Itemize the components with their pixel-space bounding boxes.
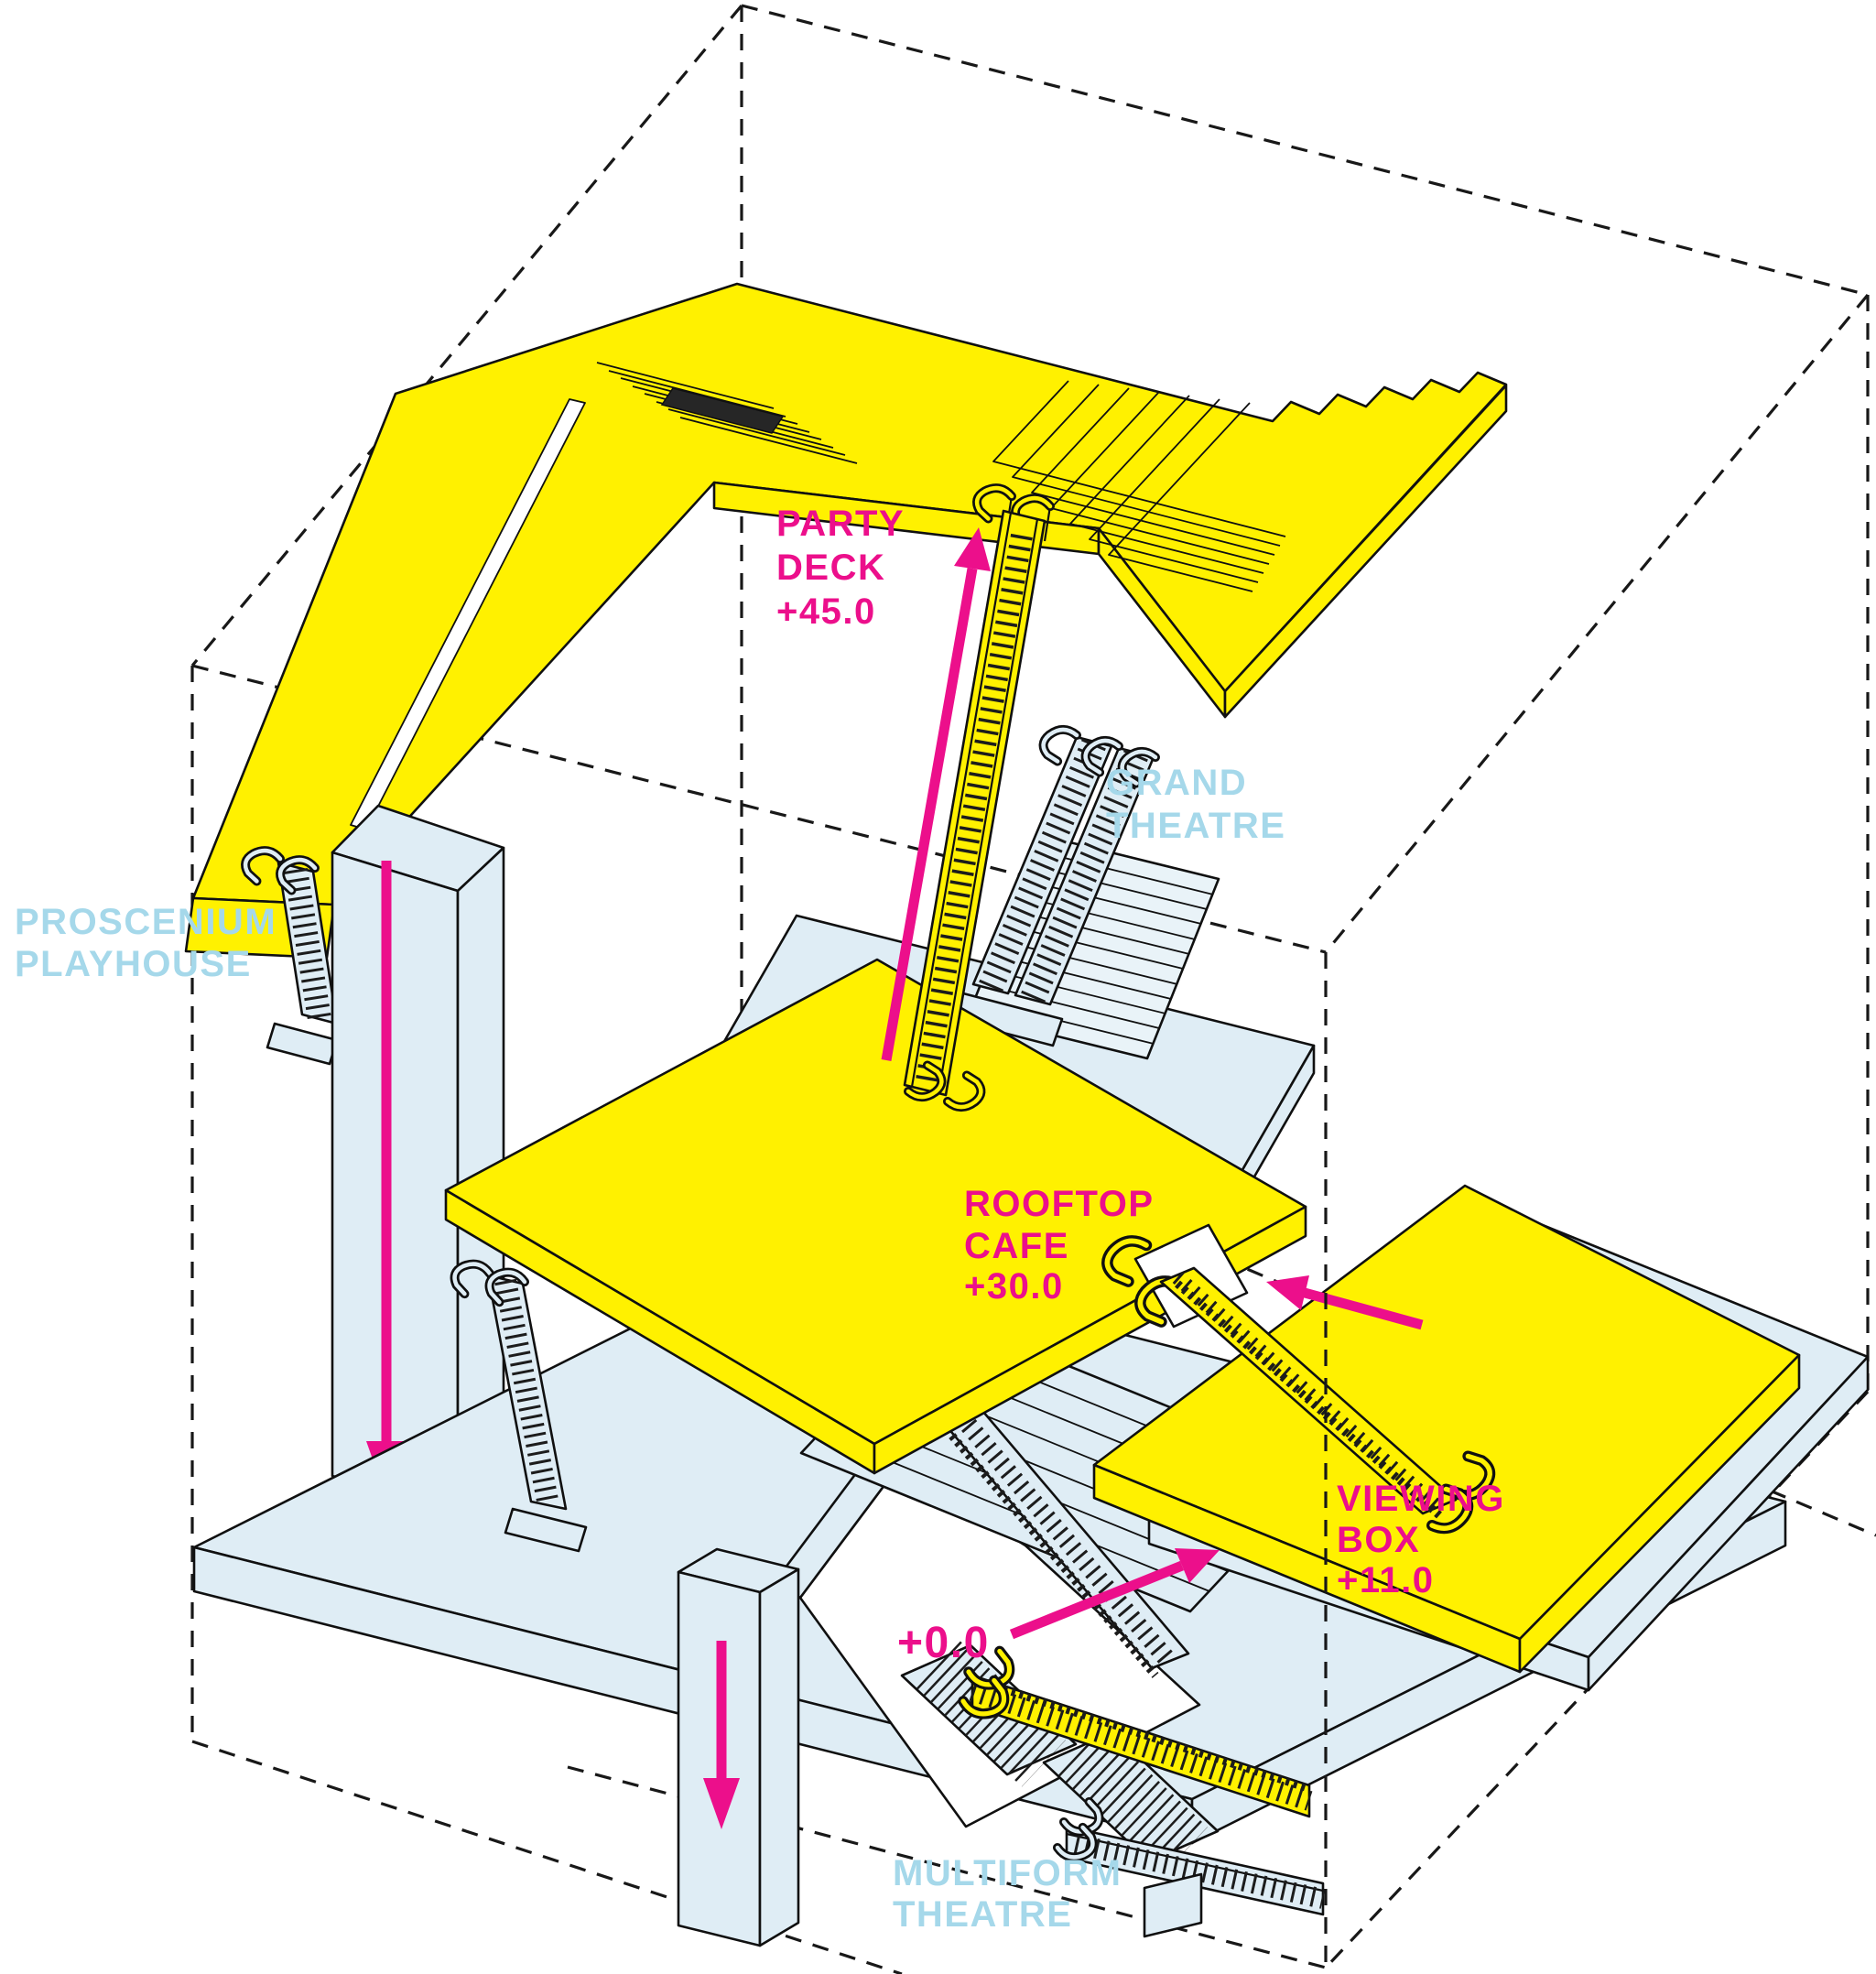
diagram-canvas: PARTY DECK +45.0 ROOFTOP CAFE +30.0 VIEW… xyxy=(0,0,1876,1974)
label-multiform-line2: THEATRE xyxy=(893,1894,1072,1935)
tower-front-face xyxy=(332,852,458,1509)
label-party-deck-line2: DECK xyxy=(776,548,885,588)
label-grand-theatre-line2: THEATRE xyxy=(1106,806,1285,846)
label-street-level: +0.0 xyxy=(897,1619,990,1667)
label-rooftop-cafe-line1: ROOFTOP xyxy=(964,1184,1155,1224)
arrowhead-left-icon xyxy=(1266,1275,1309,1310)
label-party-deck-line1: PARTY xyxy=(776,504,905,544)
basement-column xyxy=(678,1549,798,1946)
label-multiform-line1: MULTIFORM xyxy=(893,1853,1122,1893)
multiform-escalator-pedestal xyxy=(1144,1874,1201,1936)
label-party-deck-level: +45.0 xyxy=(776,591,876,632)
label-viewing-box-line1: VIEWING xyxy=(1337,1479,1505,1519)
label-grand-theatre-line1: GRAND xyxy=(1106,763,1247,803)
box-edge-top-right xyxy=(742,5,1868,295)
label-proscenium-line2: PLAYHOUSE xyxy=(15,944,252,984)
label-viewing-box-level: +11.0 xyxy=(1337,1560,1435,1600)
label-viewing-box-line2: BOX xyxy=(1337,1520,1420,1560)
box-edge-front-right-top xyxy=(1326,295,1868,952)
label-rooftop-cafe-line2: CAFE xyxy=(964,1226,1069,1266)
label-proscenium-line1: PROSCENIUM xyxy=(15,902,277,942)
label-rooftop-cafe-level: +30.0 xyxy=(964,1266,1064,1307)
axonometric-diagram: PARTY DECK +45.0 ROOFTOP CAFE +30.0 VIEW… xyxy=(0,0,1876,1974)
